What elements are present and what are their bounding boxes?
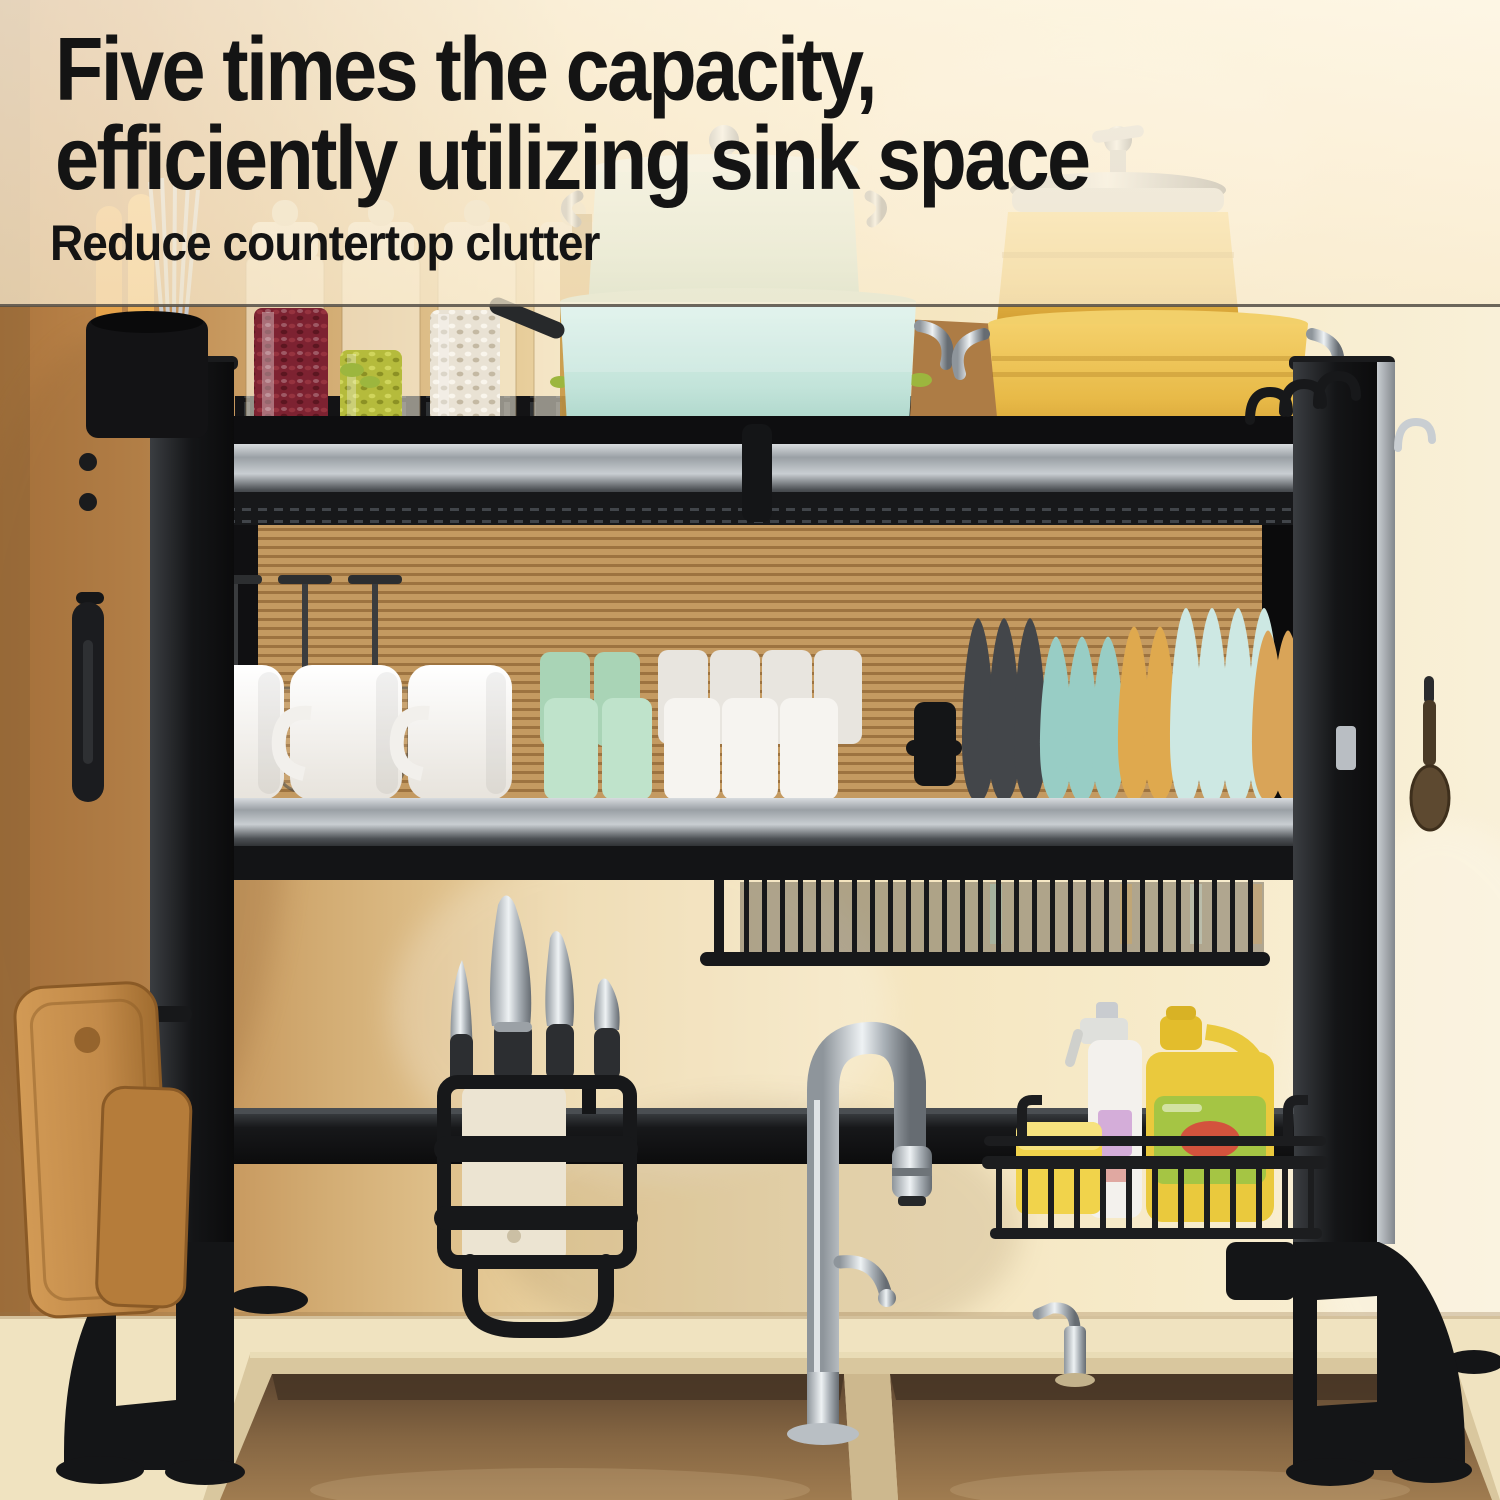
right-post — [1289, 356, 1395, 1244]
subheadline: Reduce countertop clutter — [50, 214, 647, 272]
headline-line2: efficiently utilizing sink space — [55, 115, 1088, 204]
product-image: Five times the capacity, efficiently uti… — [0, 0, 1500, 1500]
post-latch — [1336, 726, 1356, 770]
top-shelf — [150, 416, 1362, 525]
headline-line1: Five times the capacity, — [55, 26, 875, 115]
mug — [397, 665, 512, 800]
hanging-utensil-left — [72, 592, 104, 802]
banner: Five times the capacity, efficiently uti… — [55, 26, 1229, 204]
spice-jar-white-beans — [430, 310, 500, 432]
drip-rack-prongs — [740, 880, 1264, 958]
shelf-divider-clamp — [742, 424, 772, 522]
banner-divider-line — [0, 304, 1500, 307]
headline: Five times the capacity, efficiently uti… — [55, 26, 1229, 204]
drip-rack-rail — [700, 952, 1270, 966]
mug — [279, 665, 402, 800]
plate-rack-knob-stem — [906, 740, 962, 756]
rack-rear-foot-left — [228, 1286, 308, 1314]
spice-jar-red-beans — [254, 308, 328, 432]
